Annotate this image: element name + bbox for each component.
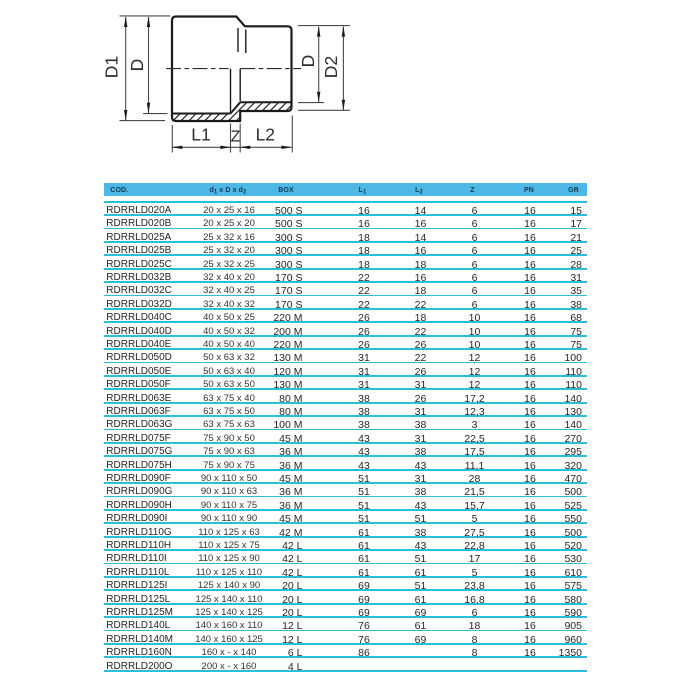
svg-text:Z: Z xyxy=(231,129,241,146)
svg-text:D1: D1 xyxy=(102,56,122,78)
svg-text:L1: L1 xyxy=(191,125,210,145)
svg-text:D2: D2 xyxy=(321,56,341,78)
svg-text:L2: L2 xyxy=(256,125,275,145)
svg-text:D: D xyxy=(298,55,318,68)
svg-text:D: D xyxy=(127,59,147,72)
